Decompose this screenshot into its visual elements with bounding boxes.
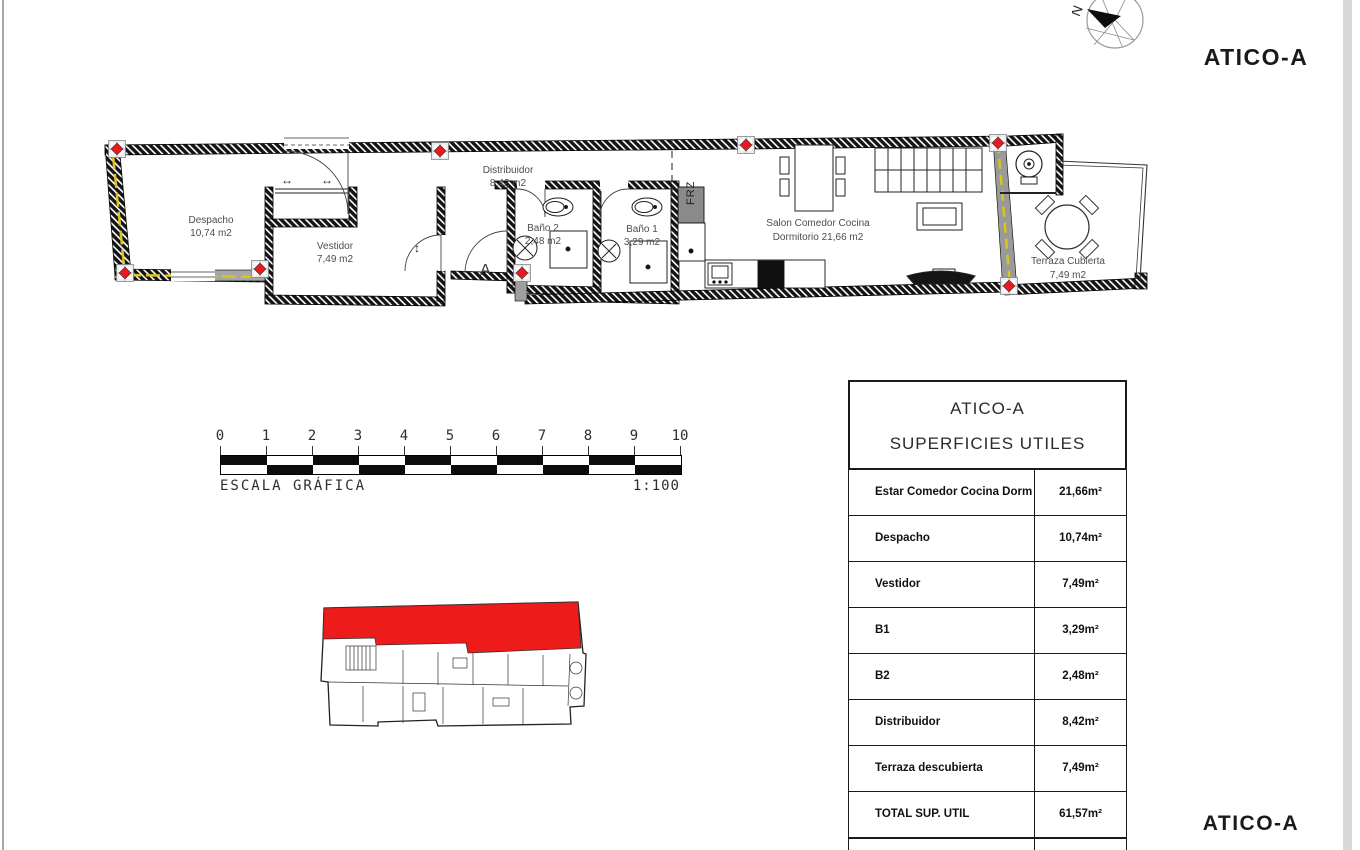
scale-segment (635, 465, 681, 474)
table-row-value: 7,49m² (1034, 746, 1127, 792)
table-row: Estar Comedor Cocina Dorm21,66m² (848, 470, 1127, 516)
scale-tick (680, 446, 681, 455)
terrace-table (1045, 205, 1089, 249)
graphic-scale: 012345678910 ESCALA GRÁFICA 1:100 (220, 426, 690, 501)
scale-tick-number: 0 (205, 428, 235, 444)
scale-bar (220, 455, 682, 475)
table-row: Terraza descubierta7,49m² (848, 746, 1127, 792)
scale-tick-number: 1 (251, 428, 281, 444)
cooktop (758, 261, 784, 288)
svg-text:8,42 m2: 8,42 m2 (490, 178, 527, 189)
svg-text:10,74 m2: 10,74 m2 (190, 228, 232, 239)
fridge-label: FRZ (685, 181, 697, 205)
scale-segment (497, 465, 543, 474)
scale-segment (267, 465, 313, 474)
scale-segment (267, 456, 313, 465)
table-row-label: B2 (848, 654, 1034, 700)
north-label: N (1072, 3, 1086, 18)
areas-table: ATICO-A SUPERFICIES UTILES Estar Comedor… (848, 380, 1127, 850)
scale-tick-number: 2 (297, 428, 327, 444)
scale-tick-number: 4 (389, 428, 419, 444)
scale-segment (635, 456, 681, 465)
scale-tick (634, 446, 635, 455)
scale-tick (450, 446, 451, 455)
table-row-label: Terraza descubierta (848, 746, 1034, 792)
page-edge-right (1343, 0, 1352, 850)
scale-tick-number: 10 (665, 428, 695, 444)
room-label-distribuidor: Distribuidor (483, 165, 534, 176)
scale-tick-number: 3 (343, 428, 373, 444)
scale-segment (221, 465, 267, 474)
scale-tick-number: 6 (481, 428, 511, 444)
table-row-value: 10,74m² (1034, 516, 1127, 562)
scale-tick (542, 446, 543, 455)
scale-segment (405, 456, 451, 465)
table-row-label: Despacho (848, 516, 1034, 562)
scale-segment (451, 465, 497, 474)
table-row-value: 21,66m² (1034, 470, 1127, 516)
table-row-label: Vestidor (848, 562, 1034, 608)
scale-segment (359, 465, 405, 474)
table-row: B22,48m² (848, 654, 1127, 700)
section-label: A (480, 262, 491, 279)
table-row: Despacho10,74m² (848, 516, 1127, 562)
svg-text:Dormitorio 21,66 m2: Dormitorio 21,66 m2 (773, 232, 864, 243)
scale-segment (313, 465, 359, 474)
svg-text:3,29 m2: 3,29 m2 (624, 237, 661, 248)
scale-tick (220, 446, 221, 455)
scale-segment (359, 456, 405, 465)
table-row: B13,29m² (848, 608, 1127, 654)
scale-segment (589, 456, 635, 465)
areas-table-rows: Estar Comedor Cocina Dorm21,66m²Despacho… (848, 470, 1127, 850)
page-edge-left (2, 0, 4, 850)
table-title: ATICO-A (850, 399, 1125, 419)
key-plan (318, 598, 596, 740)
svg-text:2,48 m2: 2,48 m2 (525, 236, 562, 247)
scale-ratio: 1:100 (618, 478, 680, 494)
scale-tick (312, 446, 313, 455)
room-label-terraza: Terraza Cubierta (1031, 256, 1105, 267)
room-label-bano2: Baño 2 (527, 223, 559, 234)
table-row-label (848, 838, 1034, 850)
slide-arrow: ↔ (281, 173, 293, 187)
table-subtitle: SUPERFICIES UTILES (850, 434, 1125, 454)
floor-plan: FRZ ↔ ↔ (95, 123, 1170, 318)
table-row-value: 2,48m² (1034, 654, 1127, 700)
dining-table (795, 145, 833, 211)
scale-segment (543, 465, 589, 474)
table-row-value (1034, 838, 1127, 850)
room-label-vestidor: Vestidor (317, 241, 354, 252)
scale-tick (496, 446, 497, 455)
room-label-despacho: Despacho (188, 215, 233, 226)
table-row: Vestidor7,49m² (848, 562, 1127, 608)
table-row: TOTAL SUP. UTIL61,57m² (848, 792, 1127, 838)
table-row-value: 7,49m² (1034, 562, 1127, 608)
scale-tick (588, 446, 589, 455)
scale-segment (313, 456, 359, 465)
scale-segment (405, 465, 451, 474)
scale-tick-number: 8 (573, 428, 603, 444)
scale-segment (497, 456, 543, 465)
page-title-top: ATICO-A (1196, 44, 1316, 71)
room-label-bano1: Baño 1 (626, 224, 658, 235)
table-row-label: Distribuidor (848, 700, 1034, 746)
table-row-label: TOTAL SUP. UTIL (848, 792, 1034, 838)
scale-label: ESCALA GRÁFICA (220, 478, 366, 494)
slide-arrow-v: ↕ (414, 241, 420, 255)
table-row-partial (848, 838, 1127, 850)
scale-segment (543, 456, 589, 465)
room-label-salon: Salon Comedor Cocina (766, 218, 870, 229)
scale-segment (451, 456, 497, 465)
scale-tick (266, 446, 267, 455)
table-row-value: 3,29m² (1034, 608, 1127, 654)
scale-segment (221, 456, 267, 465)
scale-tick-number: 5 (435, 428, 465, 444)
table-row-label: Estar Comedor Cocina Dorm (848, 470, 1034, 516)
svg-text:7,49 m2: 7,49 m2 (317, 254, 354, 265)
slide-arrow: ↔ (321, 173, 333, 187)
scale-tick (358, 446, 359, 455)
page-title-bottom: ATICO-A (1196, 812, 1306, 836)
table-row: Distribuidor8,42m² (848, 700, 1127, 746)
scale-tick (404, 446, 405, 455)
scale-tick-number: 9 (619, 428, 649, 444)
scale-tick-number: 7 (527, 428, 557, 444)
north-arrow-icon: N (1072, 0, 1164, 60)
table-row-value: 61,57m² (1034, 792, 1127, 838)
table-row-value: 8,42m² (1034, 700, 1127, 746)
sofa (907, 271, 975, 284)
areas-table-header: ATICO-A SUPERFICIES UTILES (848, 380, 1127, 470)
north-pointer (1087, 9, 1121, 28)
svg-text:7,49 m2: 7,49 m2 (1050, 270, 1087, 281)
table-row-label: B1 (848, 608, 1034, 654)
scale-segment (589, 465, 635, 474)
